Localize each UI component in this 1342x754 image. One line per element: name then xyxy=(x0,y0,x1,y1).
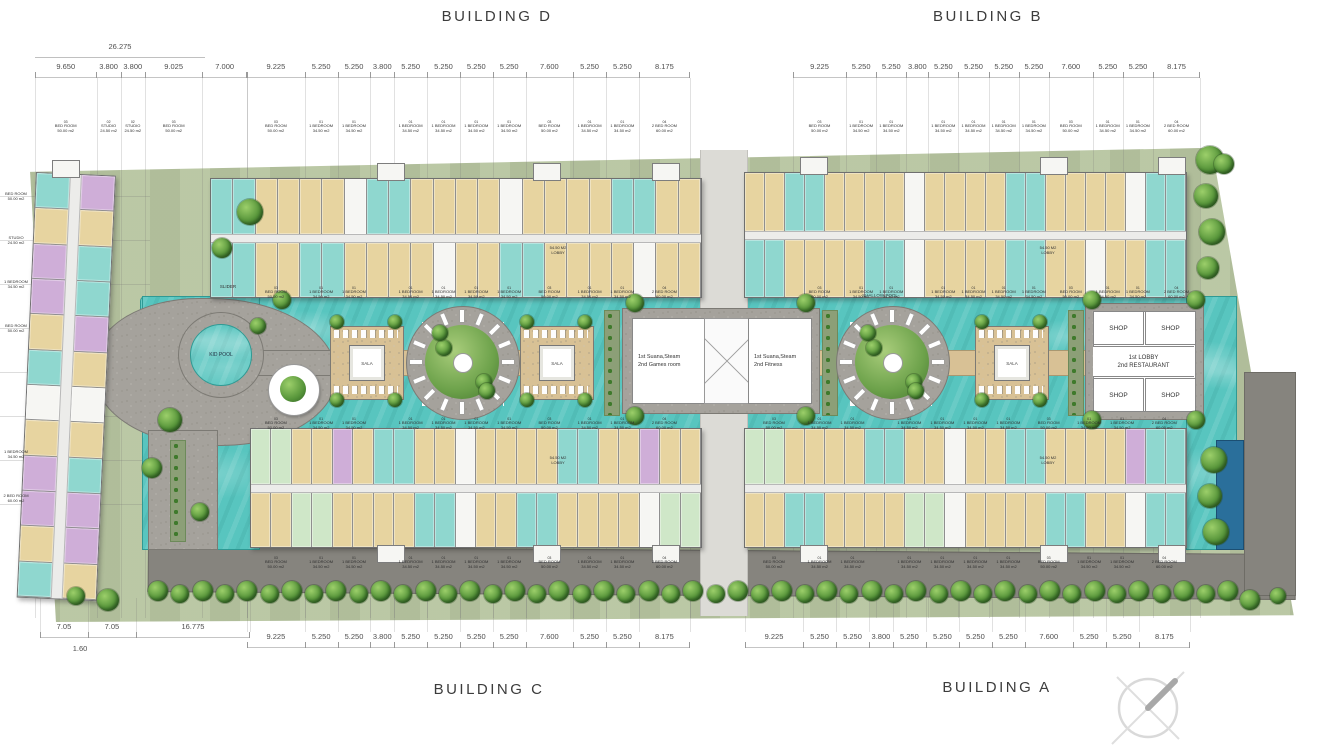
tree xyxy=(388,315,402,329)
unit-cell xyxy=(478,179,500,234)
dimension-segment: 5.250 xyxy=(1106,632,1139,648)
unit-cell xyxy=(1126,429,1146,484)
unit-cell xyxy=(656,179,678,234)
hedge-tree xyxy=(350,585,368,603)
unit-micro-label: 011 BEDROOM34.50 m2 xyxy=(578,286,602,300)
unit-cell xyxy=(966,429,986,484)
hedge-tree xyxy=(416,581,436,601)
unit-label-line: 50.00 m2 xyxy=(5,329,27,334)
unit-cell xyxy=(67,457,102,494)
unit-cell xyxy=(660,493,680,548)
sauna-games-line2: 2nd Games room xyxy=(633,361,705,369)
unit-label-line: 34.50 m2 xyxy=(464,565,488,570)
stair-core xyxy=(52,160,80,178)
unit-label-line: 34.50 m2 xyxy=(1126,129,1150,134)
unit-label-line: 34.50 m2 xyxy=(342,295,366,300)
unit-cell xyxy=(885,493,905,548)
unit-micro-label: 011 BEDROOM34.50 m2 xyxy=(342,556,366,570)
tree xyxy=(1201,447,1227,473)
unit-label-line: 34.50 m2 xyxy=(930,426,954,431)
dim-label: 5.250 xyxy=(1073,632,1106,641)
unit-cell xyxy=(496,429,516,484)
unit-label-line: 60.00 m2 xyxy=(652,129,677,134)
unit-micro-label: 011 BEDROOM34.50 m2 xyxy=(992,286,1016,300)
unit-cell xyxy=(1066,493,1086,548)
unit-label-line: 34.50 m2 xyxy=(879,129,903,134)
unit-cell xyxy=(805,429,825,484)
unit-micro-label: 011 BEDROOM34.50 m2 xyxy=(431,417,455,431)
dimension-segment: 5.250 xyxy=(427,62,460,78)
unit-cell xyxy=(681,493,701,548)
dimension-segment: 9.225 xyxy=(745,632,803,648)
unit-cell xyxy=(35,173,70,210)
unit-label-line: 50.00 m2 xyxy=(809,295,831,300)
unit-micro-label: 011 BEDROOM34.50 m2 xyxy=(897,556,921,570)
unit-cell xyxy=(765,240,785,298)
unit-cell xyxy=(567,179,589,234)
hedge-tree xyxy=(371,581,391,601)
unit-cell xyxy=(415,429,435,484)
unit-cell xyxy=(367,179,389,234)
unit-micro-label: 011 BEDROOM34.50 m2 xyxy=(1077,417,1101,431)
unit-cell xyxy=(681,429,701,484)
dim-label: 8.175 xyxy=(1153,62,1200,71)
unit-cell xyxy=(966,173,986,231)
unit-micro-label: 1 BEDROOM34.50 m2 xyxy=(4,280,28,290)
dimension-segment: 8.175 xyxy=(1153,62,1200,78)
unit-micro-label: 011 BEDROOM34.50 m2 xyxy=(497,417,521,431)
unit-cell xyxy=(785,493,805,548)
unit-label-line: 34.50 m2 xyxy=(342,426,366,431)
unit-cell xyxy=(845,173,865,231)
stair-core xyxy=(652,163,680,181)
unit-cell xyxy=(785,173,805,231)
unit-micro-label: 011 BEDROOM34.50 m2 xyxy=(879,286,903,300)
unit-micro-label: 011 BEDROOM34.50 m2 xyxy=(342,286,366,300)
unit-cell xyxy=(18,561,53,598)
building-corridor xyxy=(211,234,701,243)
unit-cell xyxy=(619,493,639,548)
shop-label: SHOP xyxy=(1161,392,1179,399)
hedge-tree xyxy=(751,585,769,603)
gridline-vertical xyxy=(338,598,339,632)
unit-label-line: 60.00 m2 xyxy=(1164,129,1189,134)
unit-cell xyxy=(925,429,945,484)
unit-cell xyxy=(745,173,765,231)
unit-cell xyxy=(374,429,394,484)
unit-cell xyxy=(986,429,1006,484)
dimension-segment: 5.250 xyxy=(338,62,371,78)
unit-micro-label: 011 BEDROOM34.50 m2 xyxy=(399,556,423,570)
unit-label-line: 34.50 m2 xyxy=(849,129,873,134)
unit-cell xyxy=(367,243,389,298)
dimension-segment: 5.250 xyxy=(1073,632,1106,648)
dim-label: 5.250 xyxy=(846,62,876,71)
unit-cell xyxy=(353,429,373,484)
lobby-micro: 54.50 M2 LOBBY xyxy=(550,246,567,256)
unit-cell xyxy=(1126,493,1146,548)
unit-micro-label: 011 BEDROOM34.50 m2 xyxy=(497,556,521,570)
planter-strip xyxy=(1068,310,1084,416)
unit-micro-label: 011 BEDROOM34.50 m2 xyxy=(807,556,831,570)
dim-label: 9.225 xyxy=(745,632,803,641)
hedge-tree xyxy=(216,585,234,603)
gridline-vertical xyxy=(305,598,306,632)
loungers xyxy=(979,330,1043,338)
lobby-restaurant-room: 1st LOBBY 2nd RESTAURANT xyxy=(1093,346,1194,377)
unit-label-line: 34.50 m2 xyxy=(497,295,521,300)
building-unit-row xyxy=(251,429,701,484)
unit-label-line: 34.50 m2 xyxy=(961,295,985,300)
island-center xyxy=(453,353,473,373)
unit-micro-label: 011 BEDROOM34.50 m2 xyxy=(996,556,1020,570)
lounger-spoke xyxy=(890,310,894,322)
unit-micro-label: BED ROOM50.00 m2 xyxy=(5,192,27,202)
unit-micro-label: 011 BEDROOM34.50 m2 xyxy=(1096,286,1120,300)
gridline-vertical xyxy=(1073,598,1074,632)
unit-cell xyxy=(79,210,114,247)
gridline-vertical xyxy=(394,598,395,632)
dim-label: 8.175 xyxy=(639,632,690,641)
unit-label-line: 34.50 m2 xyxy=(431,426,455,431)
unit-cell xyxy=(1146,429,1166,484)
unit-cell xyxy=(476,493,496,548)
lobby-micro: 54.50 M2 LOBBY xyxy=(550,456,567,466)
unit-label-line: 50.00 m2 xyxy=(265,426,287,431)
unit-cell xyxy=(211,179,233,234)
unit-cell xyxy=(612,179,634,234)
dim-label: 7.05 xyxy=(88,622,136,631)
dim-label: 5.250 xyxy=(305,632,338,641)
unit-label-line: 34.50 m2 xyxy=(897,426,921,431)
lobby-micro: 54.50 M2 LOBBY xyxy=(1040,456,1057,466)
unit-cell xyxy=(64,528,99,565)
gridline-vertical xyxy=(893,598,894,632)
unit-micro-label: 03BED ROOM50.00 m2 xyxy=(809,120,831,134)
tree xyxy=(237,199,263,225)
unit-label-line: 60.00 m2 xyxy=(3,499,28,504)
hedge-tree xyxy=(639,581,659,601)
unit-label-line: 50.00 m2 xyxy=(1060,129,1082,134)
dimension-segment: 5.250 xyxy=(992,632,1025,648)
sauna-fitness-line1: 1st Suana,Steam xyxy=(749,353,811,361)
dim-label: 5.250 xyxy=(606,62,639,71)
unit-micro-label: STUDIO24.50 m2 xyxy=(8,236,25,246)
dimension-segment: 7.600 xyxy=(1049,62,1093,78)
dim-label: 9.025 xyxy=(145,62,203,71)
unit-cell xyxy=(80,175,115,212)
building-b xyxy=(744,172,1187,298)
dim-offset-label: 1.60 xyxy=(73,644,88,653)
unit-cell xyxy=(1026,173,1046,231)
dim-label: 3.800 xyxy=(869,632,893,641)
dim-label: 5.250 xyxy=(573,632,606,641)
dim-label: 5.250 xyxy=(926,632,959,641)
unit-micro-label: 03BED ROOM50.00 m2 xyxy=(1038,417,1060,431)
stair-core xyxy=(1158,157,1186,175)
gridline-vertical xyxy=(1106,598,1107,632)
unit-micro-label: 011 BEDROOM34.50 m2 xyxy=(1077,556,1101,570)
unit-cell xyxy=(435,429,455,484)
dimension-segment: 8.175 xyxy=(1139,632,1190,648)
unit-cell xyxy=(1146,493,1166,548)
unit-label-line: 34.50 m2 xyxy=(309,565,333,570)
dim-label: 5.250 xyxy=(1093,62,1123,71)
unit-micro-label: 011 BEDROOM34.50 m2 xyxy=(464,556,488,570)
kid-pool: KID POOL xyxy=(190,324,252,386)
unit-micro-label: 011 BEDROOM34.50 m2 xyxy=(309,417,333,431)
unit-label-line: 34.50 m2 xyxy=(497,129,521,134)
unit-label-line: 50.00 m2 xyxy=(539,129,561,134)
dim-label: 5.250 xyxy=(959,632,992,641)
unit-cell xyxy=(905,493,925,548)
unit-micro-label: 03BED ROOM50.00 m2 xyxy=(163,120,185,134)
unit-cell xyxy=(456,429,476,484)
unit-cell xyxy=(374,493,394,548)
building-c-title: BUILDING C xyxy=(434,681,545,698)
unit-label-line: 34.50 m2 xyxy=(4,285,28,290)
building-unit-row xyxy=(211,179,701,234)
unit-label-line: 34.50 m2 xyxy=(1022,129,1046,134)
unit-micro-label: 011 BEDROOM34.50 m2 xyxy=(840,417,864,431)
unit-cell xyxy=(545,179,567,234)
sauna-fitness-line2: 2nd Fitness xyxy=(749,361,811,369)
unit-cell xyxy=(1086,429,1106,484)
unit-cell xyxy=(435,493,455,548)
unit-micro-label: 03BED ROOM50.00 m2 xyxy=(1060,120,1082,134)
unit-cell xyxy=(745,429,765,484)
unit-label-line: 34.50 m2 xyxy=(930,565,954,570)
tree xyxy=(975,315,989,329)
dimension-segment: 3.800 xyxy=(906,62,928,78)
lounger-spoke xyxy=(410,360,422,364)
unit-cell xyxy=(1126,173,1146,231)
dim-label: 9.650 xyxy=(35,62,96,71)
dimension-segment: 5.250 xyxy=(305,62,338,78)
unit-label-line: 34.50 m2 xyxy=(497,565,521,570)
road-right xyxy=(1244,372,1296,596)
gridline-vertical xyxy=(992,598,993,632)
building-corridor xyxy=(745,484,1186,493)
unit-cell xyxy=(69,422,104,459)
unit-micro-label: 011 BEDROOM34.50 m2 xyxy=(963,417,987,431)
unit-micro-label: 011 BEDROOM34.50 m2 xyxy=(879,120,903,134)
unit-micro-label: 03BED ROOM50.00 m2 xyxy=(763,417,785,431)
unit-label-line: 50.00 m2 xyxy=(1038,565,1060,570)
unit-cell xyxy=(26,385,61,422)
dim-label: 3.800 xyxy=(370,632,394,641)
unit-micro-label: 011 BEDROOM34.50 m2 xyxy=(464,417,488,431)
dimension-row: 7.057.0516.775 xyxy=(40,622,250,638)
gridline-vertical xyxy=(639,598,640,632)
tree xyxy=(388,393,402,407)
dimension-segment: 9.025 xyxy=(145,62,203,78)
hedge-tree xyxy=(1085,581,1105,601)
dim-label: 9.225 xyxy=(793,62,846,71)
dimension-segment: 5.250 xyxy=(460,632,493,648)
unit-cell xyxy=(1086,173,1106,231)
unit-cell xyxy=(925,173,945,231)
unit-micro-label: 011 BEDROOM34.50 m2 xyxy=(578,556,602,570)
unit-cell xyxy=(945,173,965,231)
tree xyxy=(1240,590,1260,610)
unit-micro-label: 011 BEDROOM34.50 m2 xyxy=(610,286,634,300)
dim-label: 16.775 xyxy=(136,622,250,631)
gridline-vertical xyxy=(836,598,837,632)
unit-cell xyxy=(1006,173,1026,231)
unit-micro-label: 03BED ROOM50.00 m2 xyxy=(539,417,561,431)
dimension-row: 9.6503.8003.8009.0257.000 xyxy=(35,62,247,78)
dimension-row: 9.2255.2505.2503.8005.2505.2505.2505.250… xyxy=(247,632,690,648)
gridline-vertical xyxy=(959,598,960,632)
unit-cell xyxy=(825,493,845,548)
building-unit-row xyxy=(745,429,1186,484)
unit-cell xyxy=(322,179,344,234)
dim-label: 5.250 xyxy=(493,62,526,71)
unit-cell xyxy=(845,493,865,548)
unit-micro-label: 042 BED ROOM60.00 m2 xyxy=(1164,120,1189,134)
dimension-segment: 9.225 xyxy=(247,62,305,78)
unit-label-line: 34.50 m2 xyxy=(807,426,831,431)
dim-label: 7.600 xyxy=(1049,62,1093,71)
unit-cell xyxy=(578,429,598,484)
dim-label: 9.225 xyxy=(247,62,305,71)
unit-label-line: 34.50 m2 xyxy=(996,565,1020,570)
unit-label-line: 34.50 m2 xyxy=(1110,565,1134,570)
unit-label-line: 60.00 m2 xyxy=(1152,426,1177,431)
unit-label-line: 50.00 m2 xyxy=(163,129,185,134)
tree xyxy=(142,458,162,478)
unit-cell xyxy=(389,179,411,234)
gridline-vertical xyxy=(1025,598,1026,632)
unit-cell xyxy=(1106,173,1126,231)
unit-micro-label: 011 BEDROOM34.50 m2 xyxy=(849,120,873,134)
unit-cell xyxy=(31,279,66,316)
unit-label-line: 34.50 m2 xyxy=(1077,565,1101,570)
dim-label: 5.250 xyxy=(427,62,460,71)
unit-micro-label: 011 BEDROOM34.50 m2 xyxy=(1022,120,1046,134)
unit-cell xyxy=(1066,173,1086,231)
unit-label-line: 34.50 m2 xyxy=(931,129,955,134)
unit-cell xyxy=(394,429,414,484)
building-unit-row xyxy=(745,173,1186,231)
sauna-games-line1: 1st Suana,Steam xyxy=(633,353,705,361)
unit-label-line: 34.50 m2 xyxy=(1096,295,1120,300)
tree xyxy=(520,315,534,329)
dim-label: 5.250 xyxy=(338,632,371,641)
hedge-tree xyxy=(261,585,279,603)
unit-cell xyxy=(77,246,112,283)
unit-micro-label: 011 BEDROOM34.50 m2 xyxy=(309,286,333,300)
hedge-tree xyxy=(193,581,213,601)
dim-label: 5.250 xyxy=(1123,62,1153,71)
compass-icon xyxy=(1106,666,1190,750)
dimension-row: 9.2255.2505.2503.8005.2505.2505.2505.250… xyxy=(793,62,1200,78)
unit-cell xyxy=(19,526,54,563)
gridline-vertical xyxy=(606,598,607,632)
unit-micro-label: 03BED ROOM50.00 m2 xyxy=(1060,286,1082,300)
dimension-segment: 7.600 xyxy=(1025,632,1073,648)
dimension-segment: 5.250 xyxy=(926,632,959,648)
dim-label: 7.05 xyxy=(40,622,88,631)
gridline-vertical xyxy=(526,598,527,632)
unit-micro-label: 011 BEDROOM34.50 m2 xyxy=(1126,120,1150,134)
unit-label-line: 50.00 m2 xyxy=(539,295,561,300)
unit-cell xyxy=(679,243,701,298)
unit-label-line: 34.50 m2 xyxy=(931,295,955,300)
tree xyxy=(578,393,592,407)
tree xyxy=(67,587,85,605)
tree xyxy=(250,318,266,334)
unit-label-line: 50.00 m2 xyxy=(763,426,785,431)
hedge-tree xyxy=(573,585,591,603)
unit-micro-label: 011 BEDROOM34.50 m2 xyxy=(399,286,423,300)
unit-label-line: 34.50 m2 xyxy=(464,295,488,300)
unit-micro-label: 011 BEDROOM34.50 m2 xyxy=(578,120,602,134)
unit-label-line: 34.50 m2 xyxy=(431,129,455,134)
sala-label: SALA xyxy=(1006,361,1018,366)
tree xyxy=(1187,411,1205,429)
unit-cell xyxy=(517,429,537,484)
unit-micro-label: 011 BEDROOM34.50 m2 xyxy=(610,120,634,134)
unit-micro-label: 011 BEDROOM34.50 m2 xyxy=(1110,417,1134,431)
planter-strip xyxy=(170,440,186,542)
unit-micro-label: 03BED ROOM50.00 m2 xyxy=(539,286,561,300)
unit-cell xyxy=(1166,493,1186,548)
unit-micro-label: 03BED ROOM50.00 m2 xyxy=(809,286,831,300)
hedge-tree xyxy=(930,585,948,603)
unit-micro-label: 011 BEDROOM34.50 m2 xyxy=(930,417,954,431)
dim-label: 9.225 xyxy=(247,632,305,641)
unit-cell xyxy=(865,429,885,484)
dimension-row: 9.2255.2505.2503.8005.2505.2505.2505.250… xyxy=(745,632,1190,648)
hedge-tree xyxy=(1108,585,1126,603)
unit-micro-label: 011 BEDROOM34.50 m2 xyxy=(1096,120,1120,134)
hedge-tree xyxy=(1197,585,1215,603)
dimension-segment: 5.250 xyxy=(1123,62,1153,78)
shop-room: SHOP xyxy=(1145,378,1196,412)
unit-cell xyxy=(292,493,312,548)
unit-micro-label: 011 BEDROOM34.50 m2 xyxy=(309,556,333,570)
unit-label-line: 34.50 m2 xyxy=(849,295,873,300)
unit-label-line: 34.50 m2 xyxy=(464,129,488,134)
unit-micro-label: 042 BED ROOM60.00 m2 xyxy=(652,417,677,431)
unit-cell xyxy=(1106,493,1126,548)
unit-label-line: 50.00 m2 xyxy=(539,426,561,431)
dimension-segment: 5.250 xyxy=(338,632,371,648)
unit-label-line: 60.00 m2 xyxy=(652,565,677,570)
unit-micro-label: 03BED ROOM50.00 m2 xyxy=(265,556,287,570)
unit-label-line: 34.50 m2 xyxy=(610,565,634,570)
unit-micro-label: 011 BEDROOM34.50 m2 xyxy=(897,417,921,431)
lounger-spoke xyxy=(460,310,464,322)
sala-label: SALA xyxy=(361,361,373,366)
shop-room: SHOP xyxy=(1093,378,1144,412)
dimension-segment: 9.225 xyxy=(793,62,846,78)
dim-label: 5.250 xyxy=(493,632,526,641)
unit-micro-label: 042 BED ROOM60.00 m2 xyxy=(652,556,677,570)
stair-core xyxy=(1040,157,1068,175)
unit-label-line: 34.50 m2 xyxy=(879,295,903,300)
unit-cell xyxy=(74,316,109,353)
unit-cell xyxy=(765,493,785,548)
unit-cell xyxy=(905,240,925,298)
unit-cell xyxy=(345,179,367,234)
gridline-vertical xyxy=(250,598,251,632)
dimension-segment: 3.800 xyxy=(370,62,394,78)
dimension-segment: 16.775 xyxy=(136,622,250,638)
dim-label: 5.250 xyxy=(958,62,988,71)
